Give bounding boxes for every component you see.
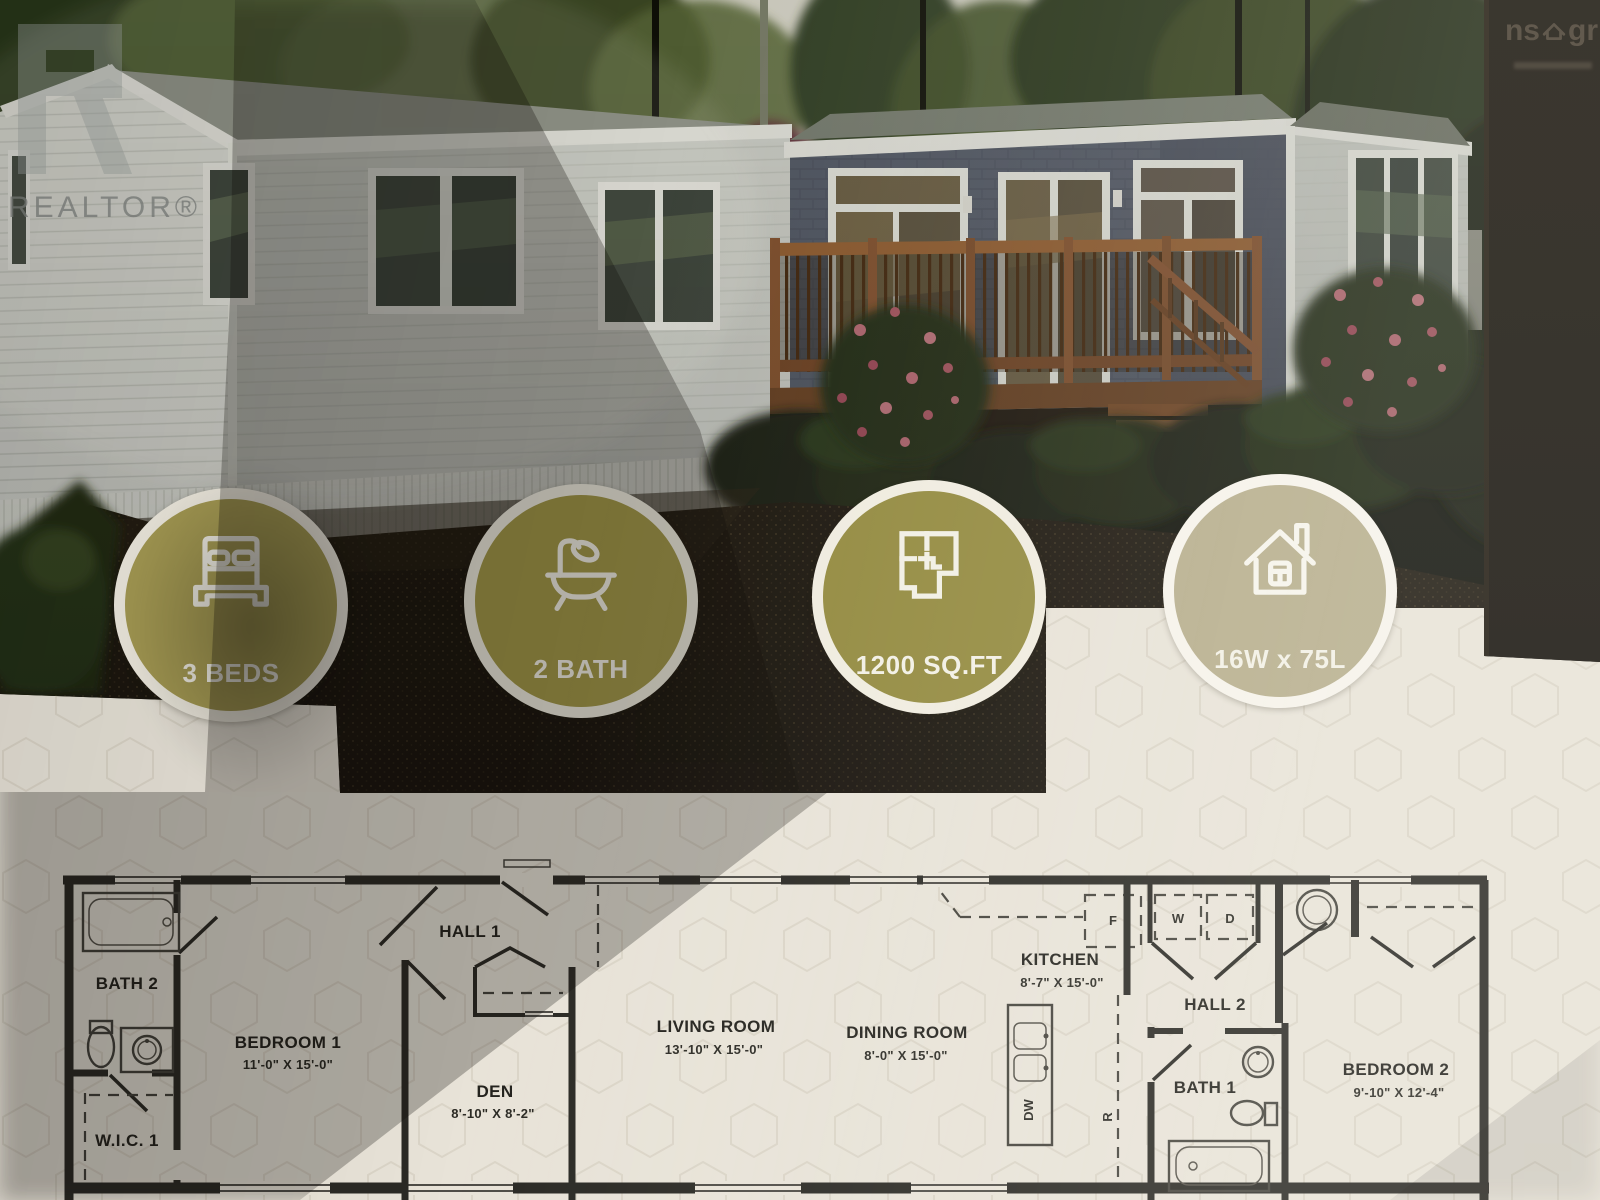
corner-watermark-right: gr bbox=[1568, 14, 1598, 48]
fridge-label: F bbox=[1109, 913, 1117, 928]
room-dims-dining: 8'-0" X 15'-0" bbox=[864, 1048, 947, 1063]
range-label: R bbox=[1100, 1112, 1115, 1122]
floorplan-icon bbox=[877, 515, 981, 619]
corner-watermark-subtext bbox=[1514, 62, 1592, 69]
room-label-bath-2: BATH 2 bbox=[96, 974, 159, 993]
corner-watermark-left: ns bbox=[1505, 14, 1540, 48]
bathtub-icon bbox=[529, 519, 633, 623]
room-label-wic-1: W.I.C. 1 bbox=[95, 1131, 159, 1150]
realtor-watermark: REALTOR® bbox=[8, 18, 201, 225]
floor-plan: BATH 2 BEDROOM 1 11'-0" X 15'-0" HALL 1 … bbox=[55, 855, 1515, 1200]
dryer-label: D bbox=[1225, 911, 1234, 926]
room-dims-kitchen: 8'-7" X 15'-0" bbox=[1020, 975, 1103, 990]
room-label-den: DEN bbox=[476, 1082, 513, 1101]
badge-sqft-label: 1200 SQ.FT bbox=[823, 650, 1035, 681]
washer-label: W bbox=[1172, 911, 1185, 926]
front-step bbox=[504, 860, 550, 867]
room-dims-bedroom-2: 9'-10" X 12'-4" bbox=[1354, 1085, 1445, 1100]
room-label-hall-1: HALL 1 bbox=[439, 922, 501, 941]
corner-watermark: ns gr bbox=[1505, 14, 1598, 48]
bath1-walls bbox=[1151, 1023, 1287, 1200]
room-dims-bedroom-1: 11'-0" X 15'-0" bbox=[243, 1057, 333, 1072]
badge-bath-label: 2 BATH bbox=[475, 654, 687, 685]
room-dims-den: 8'-10" X 8'-2" bbox=[451, 1106, 534, 1121]
room-label-kitchen: KITCHEN bbox=[1021, 950, 1099, 969]
realtor-watermark-text: REALTOR® bbox=[8, 191, 201, 225]
room-label-living: LIVING ROOM bbox=[657, 1017, 776, 1036]
photographer-shadow-blob bbox=[128, 462, 378, 792]
house-icon bbox=[1228, 509, 1332, 613]
dishwasher-label: DW bbox=[1021, 1098, 1036, 1120]
room-label-bedroom-1: BEDROOM 1 bbox=[235, 1033, 342, 1052]
realtor-logo-icon bbox=[8, 18, 138, 178]
badge-size: 16W x 75L bbox=[1163, 474, 1397, 708]
laundry-hall2-walls bbox=[1127, 880, 1475, 1023]
room-dims-living: 13'-10" X 15'-0" bbox=[665, 1042, 763, 1057]
real-estate-flyer-photo: 3 BEDS 2 BATH 1200 SQ.FT 16W x 75L bbox=[0, 0, 1600, 1200]
room-label-dining: DINING ROOM bbox=[846, 1023, 968, 1042]
room-label-bedroom-2: BEDROOM 2 bbox=[1343, 1060, 1450, 1079]
badge-sqft: 1200 SQ.FT bbox=[812, 480, 1046, 714]
badge-size-label: 16W x 75L bbox=[1174, 644, 1386, 675]
room-label-hall-2: HALL 2 bbox=[1184, 995, 1246, 1014]
room-label-bath-1: BATH 1 bbox=[1174, 1078, 1237, 1097]
corner-house-icon bbox=[1542, 20, 1566, 42]
badge-bath: 2 BATH bbox=[464, 484, 698, 718]
